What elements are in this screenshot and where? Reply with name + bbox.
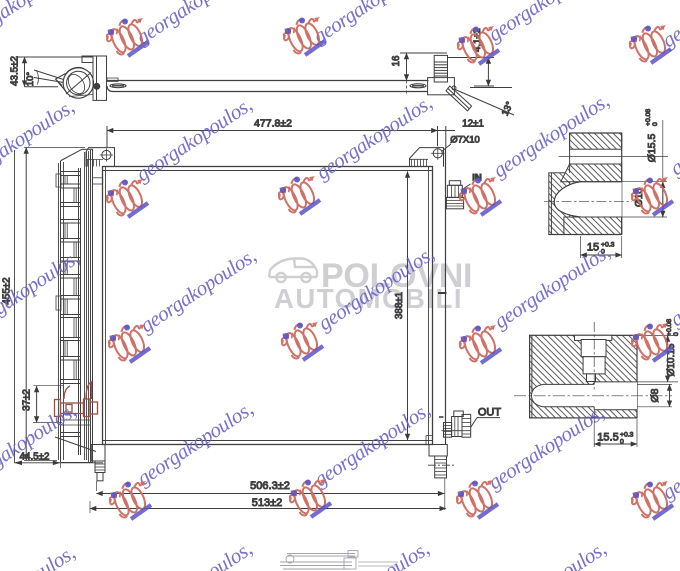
svg-text:Ø15.5: Ø15.5 [646, 134, 658, 163]
svg-text:0: 0 [620, 439, 624, 446]
svg-text:Ø8: Ø8 [649, 388, 661, 402]
svg-text:477.8±2: 477.8±2 [254, 118, 292, 130]
svg-text:43.5±2: 43.5±2 [10, 56, 21, 86]
svg-text:+0.3: +0.3 [620, 432, 634, 439]
svg-text:506.3±2: 506.3±2 [250, 480, 290, 492]
svg-text:513±2: 513±2 [252, 497, 283, 509]
svg-text:37±2: 37±2 [22, 389, 33, 411]
svg-text:0: 0 [652, 122, 659, 126]
svg-text:12±1: 12±1 [462, 119, 484, 130]
svg-text:16: 16 [391, 55, 402, 66]
svg-text:15.5: 15.5 [597, 432, 618, 444]
svg-text:+0.08: +0.08 [645, 109, 652, 126]
svg-text:10°: 10° [25, 72, 36, 87]
svg-text:Ø7X10: Ø7X10 [450, 135, 480, 146]
svg-text:0: 0 [673, 332, 680, 336]
svg-text:388±1: 388±1 [394, 292, 405, 319]
svg-text:OUT: OUT [478, 407, 502, 419]
